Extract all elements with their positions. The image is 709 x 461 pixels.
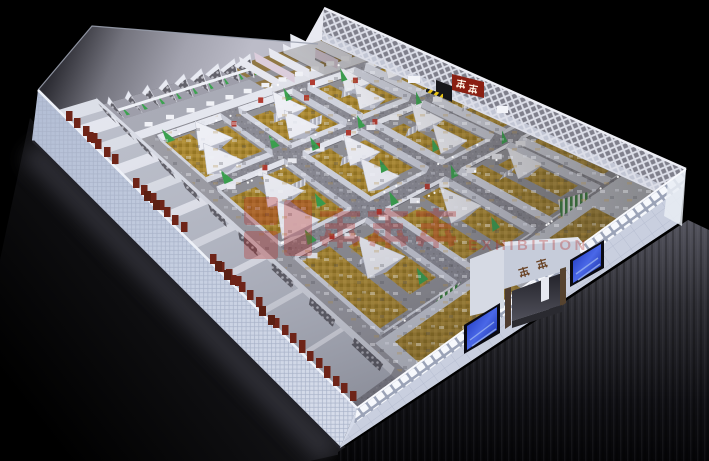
svg-text:EXHIBITION: EXHIBITION: [468, 237, 589, 254]
